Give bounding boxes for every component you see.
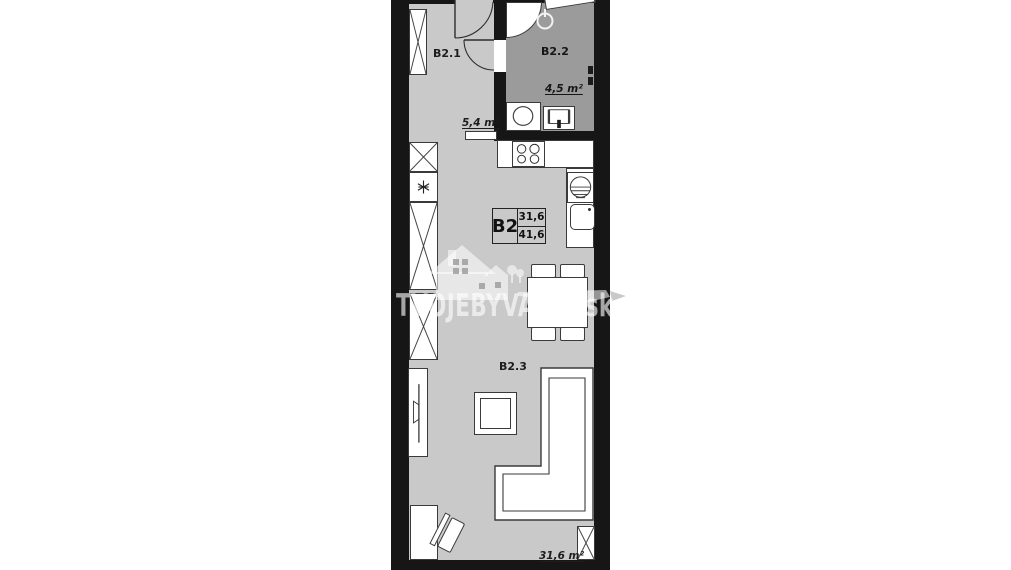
- room-label-b21: B2.1: [433, 47, 461, 60]
- floorplan-canvas: B2 31,6 41,6: [0, 0, 1011, 570]
- entrance-door: [455, 0, 493, 38]
- watermark-text-bold: BYVANIE.sk: [470, 288, 613, 324]
- shower-head-icon: [538, 9, 553, 29]
- room-label-b22: B2.2: [541, 45, 569, 58]
- watermark-text: TVOJEBYVANIE.sk: [396, 288, 614, 324]
- room-area-b21: 5,4 m²: [462, 117, 500, 129]
- room-label-b23: B2.3: [499, 360, 527, 373]
- room-area-b22: 4,5 m²: [545, 83, 583, 95]
- room-area-b23: 31,6 m²: [539, 550, 584, 562]
- watermark-text-light: TVOJE: [396, 288, 470, 324]
- sofa: [495, 368, 593, 520]
- bathroom-door: [464, 40, 494, 70]
